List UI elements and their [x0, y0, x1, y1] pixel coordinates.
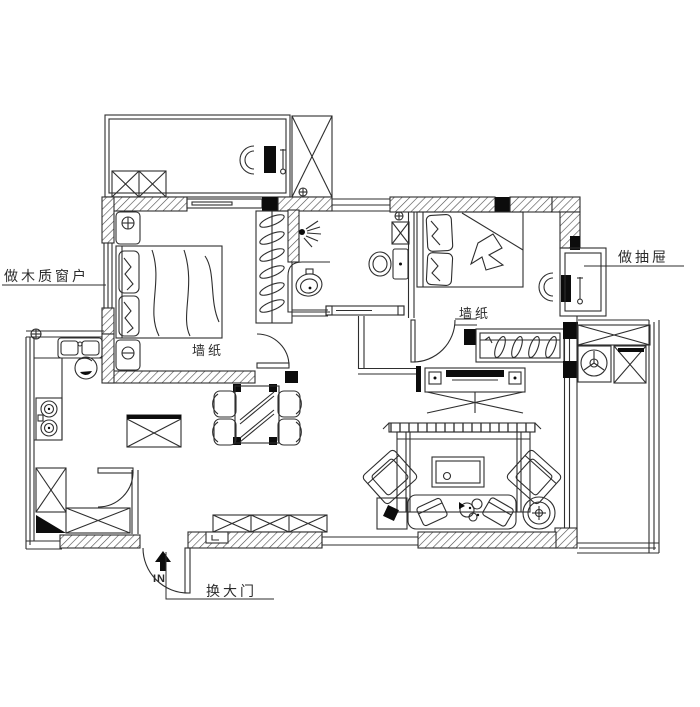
- sofa-set: [362, 423, 563, 529]
- wall-post-icon: [31, 329, 41, 339]
- label-wallpaper-master: 墙纸: [192, 343, 224, 358]
- dining-table: [235, 386, 279, 443]
- dining-chair: [213, 419, 236, 445]
- entry: [143, 515, 556, 593]
- balcony-sliding-door: [187, 199, 262, 208]
- living-room: [362, 368, 563, 529]
- master-bedroom-door[interactable]: [257, 334, 289, 368]
- label-wooden-window: 做木质窗户: [4, 268, 89, 284]
- kitchen-cabinet-low: [66, 508, 130, 533]
- coffee-table: [432, 457, 484, 487]
- washing-machine-icon: [578, 346, 611, 382]
- second-desk-chair: [539, 273, 571, 302]
- top-wall: [105, 197, 580, 250]
- dining-chair: [278, 391, 301, 417]
- side-table-round: [523, 497, 555, 529]
- kitchen-window: [26, 337, 34, 549]
- kitchen-basin: [75, 357, 97, 379]
- recliner-right: [506, 449, 563, 505]
- bathroom: [288, 210, 414, 318]
- entry-in-arrow-icon: [155, 551, 171, 571]
- balcony-cabinet-right: [578, 325, 650, 345]
- toilet-icon: [369, 249, 408, 279]
- label-entry-door: 换大门: [206, 583, 257, 599]
- label-wallpaper-second: 墙纸: [459, 306, 491, 321]
- utility-cabinet: [614, 346, 646, 383]
- label-in-marker: IN: [153, 573, 166, 585]
- second-bed: [417, 212, 523, 287]
- kitchen-door[interactable]: [98, 468, 133, 507]
- fridge: [127, 415, 181, 447]
- nightstand-bottom: [116, 340, 140, 370]
- balcony-desk-chair: [240, 146, 286, 174]
- dining-set: [213, 384, 302, 445]
- dining-chair: [213, 391, 236, 417]
- wall-post-icon: [299, 188, 307, 196]
- bathroom-sink: [288, 262, 330, 312]
- stove-icon: [36, 398, 62, 440]
- second-bedroom: [411, 212, 571, 362]
- bathroom-sliding-door[interactable]: [326, 306, 404, 315]
- master-window: [104, 243, 112, 308]
- master-closet-hangers: [256, 211, 292, 323]
- balcony-windows-right: [577, 320, 659, 553]
- dining-chair: [278, 419, 301, 445]
- nightstand-top: [116, 212, 140, 244]
- kitchen-sink: [58, 338, 102, 358]
- sofa-flowers: [459, 499, 482, 521]
- side-table-left: [377, 498, 407, 529]
- kitchen-cabinet-tall: [36, 468, 66, 533]
- right-wall: [555, 316, 578, 548]
- hall-wardrobe-column: [292, 116, 332, 197]
- balcony-top-left: [105, 115, 290, 197]
- second-wardrobe: [464, 329, 564, 362]
- master-bed: [116, 246, 222, 338]
- utility-balcony: [577, 320, 659, 553]
- label-drawer: 做抽屉: [618, 249, 669, 265]
- wall-lamp-icon: [299, 221, 321, 247]
- second-bedroom-door[interactable]: [411, 320, 455, 362]
- tv-console: [425, 368, 525, 413]
- left-exterior-wall: [26, 197, 114, 549]
- floor-plan-drawing: 做木质窗户 做抽屉 墙纸 墙纸 换大门 IN: [0, 0, 700, 707]
- shoe-cabinet: [213, 515, 327, 532]
- desk-lamp-icon: [577, 277, 583, 304]
- vent-shaft: [392, 212, 409, 244]
- floor-plan: 做木质窗户 做抽屉 墙纸 墙纸 换大门 IN: [0, 0, 700, 707]
